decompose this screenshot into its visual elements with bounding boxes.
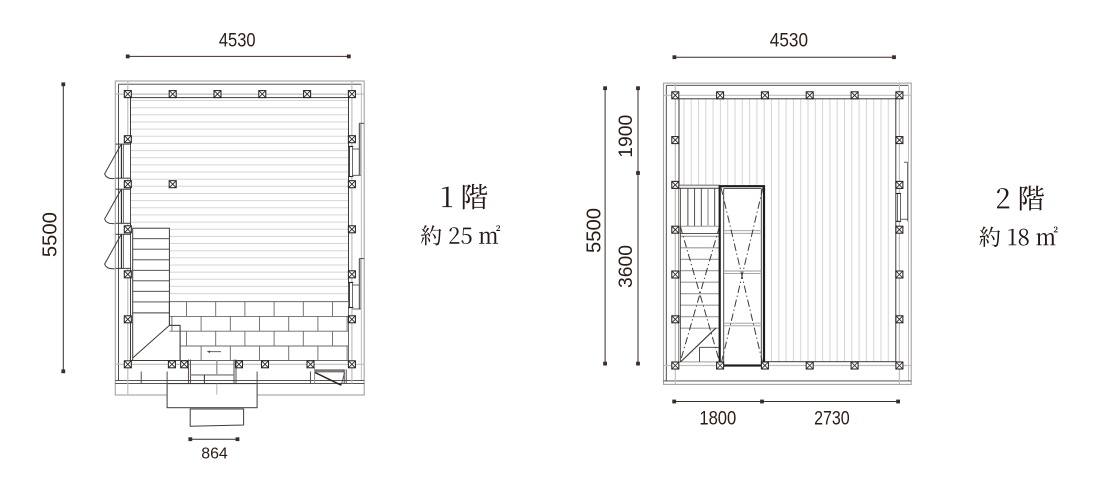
svg-text:4530: 4530: [770, 30, 808, 52]
svg-text:864: 864: [201, 446, 228, 463]
svg-text:1900: 1900: [615, 115, 637, 158]
svg-text:2730: 2730: [814, 407, 850, 429]
svg-text:1800: 1800: [699, 407, 736, 429]
svg-text:5500: 5500: [40, 212, 62, 257]
svg-text:3600: 3600: [615, 245, 637, 288]
svg-text:4530: 4530: [219, 29, 256, 51]
svg-text:5500: 5500: [584, 208, 606, 253]
